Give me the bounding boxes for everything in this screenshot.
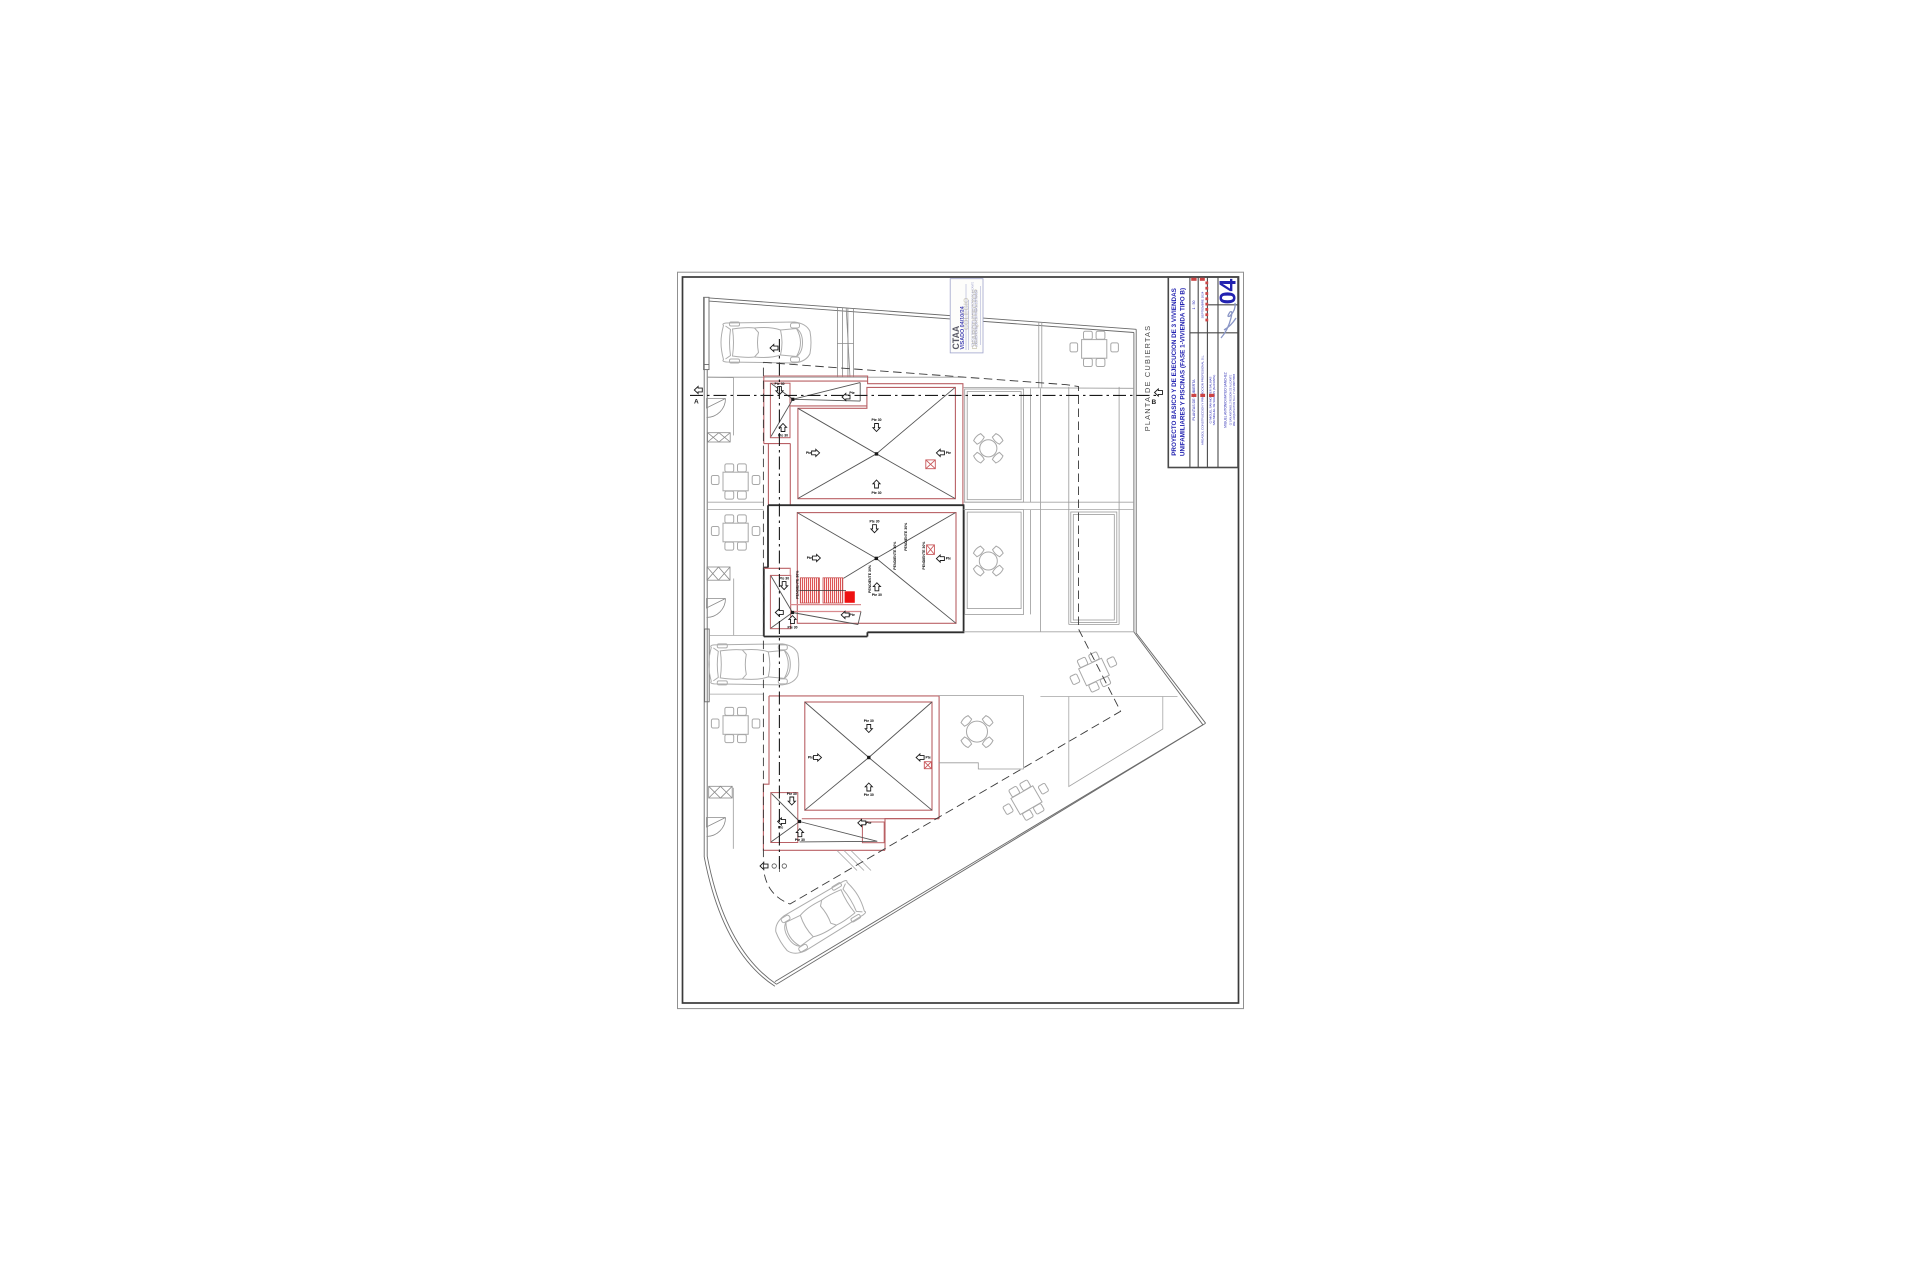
svg-text:Pte 30: Pte 30 xyxy=(779,577,789,581)
svg-text:MIGUEL ANTONIO MATEO SANCHE: MIGUEL ANTONIO MATEO SANCHEZ xyxy=(1224,372,1228,427)
svg-text:Pte: Pte xyxy=(866,821,871,825)
svg-text:DOCUMENTO VISADO CON FIRMA ELE: DOCUMENTO VISADO CON FIRMA ELECTRONICA xyxy=(976,290,979,347)
svg-text:Pte: Pte xyxy=(806,451,811,455)
svg-text:Pte: Pte xyxy=(946,451,951,455)
svg-text:Pte 30: Pte 30 xyxy=(872,491,882,495)
svg-text:Pte: Pte xyxy=(778,826,783,830)
svg-text:MAIL ARQUITECTOS TELF. Y FA: MAIL ARQUITECTOS TELF. Y FAX 966776655 xyxy=(1233,373,1236,426)
svg-text:A: A xyxy=(694,399,699,406)
svg-text:PLANTA DE CUBIERTAS: PLANTA DE CUBIERTAS xyxy=(1143,325,1152,432)
svg-text:Pte: Pte xyxy=(808,756,813,760)
svg-text:COLEGIO TERRITORIAL DE ARQUITE: COLEGIO TERRITORIAL DE ARQUITECTOS DE AL… xyxy=(972,281,975,347)
svg-text:Pte: Pte xyxy=(807,556,812,560)
svg-text:PENDIENTE 30%: PENDIENTE 30% xyxy=(796,570,800,599)
svg-text:Pte 30: Pte 30 xyxy=(788,626,798,630)
svg-text:PLANTAS DE CUBIERTA: PLANTAS DE CUBIERTA xyxy=(1192,379,1196,421)
svg-text:04: 04 xyxy=(1215,279,1241,305)
svg-text:PENDIENTE 30%: PENDIENTE 30% xyxy=(904,522,908,551)
svg-text:1 : 50: 1 : 50 xyxy=(1192,301,1196,310)
svg-text:PENDIENTE 30%: PENDIENTE 30% xyxy=(893,541,897,570)
svg-text:PENDIENTE 30%: PENDIENTE 30% xyxy=(868,564,872,593)
svg-text:Pte 30: Pte 30 xyxy=(872,418,882,422)
svg-text:PENDIENTE 30%: PENDIENTE 30% xyxy=(922,541,926,570)
svg-text:Pte 30: Pte 30 xyxy=(864,793,874,797)
svg-text:SEPTIEMBRE 2024: SEPTIEMBRE 2024 xyxy=(1201,291,1205,318)
svg-text:Pte 30: Pte 30 xyxy=(795,838,805,842)
svg-text:Pte: Pte xyxy=(850,613,855,617)
svg-text:SAN MIGUEL DE SALINAS (ALICANT: SAN MIGUEL DE SALINAS (ALICANTE) xyxy=(1212,375,1216,426)
svg-text:B: B xyxy=(1152,399,1157,406)
svg-text:Pte: Pte xyxy=(925,756,930,760)
svg-text:ARGASOL CONSTRUCCION Y PROMOCI: ARGASOL CONSTRUCCION Y PROMOCION PROFESI… xyxy=(1201,355,1205,446)
svg-text:COLEGIO: COLEGIO xyxy=(964,297,971,330)
svg-text:Pte 30: Pte 30 xyxy=(864,719,874,723)
svg-text:UNIFAMILIARES Y PISCINAS (FASE: UNIFAMILIARES Y PISCINAS (FASE 1-VIVIEND… xyxy=(1180,288,1187,456)
svg-text:Pte 30: Pte 30 xyxy=(872,593,882,597)
svg-text:Pte 30: Pte 30 xyxy=(870,520,880,524)
svg-text:Pte 30: Pte 30 xyxy=(775,382,785,386)
svg-text:Pte: Pte xyxy=(849,391,854,395)
svg-text:PROYECTO BASICO Y DE EJECUCION: PROYECTO BASICO Y DE EJECUCION DE 3 VIVI… xyxy=(1171,288,1178,456)
svg-text:Pte 30: Pte 30 xyxy=(787,792,797,796)
svg-text:Pte: Pte xyxy=(946,557,951,561)
